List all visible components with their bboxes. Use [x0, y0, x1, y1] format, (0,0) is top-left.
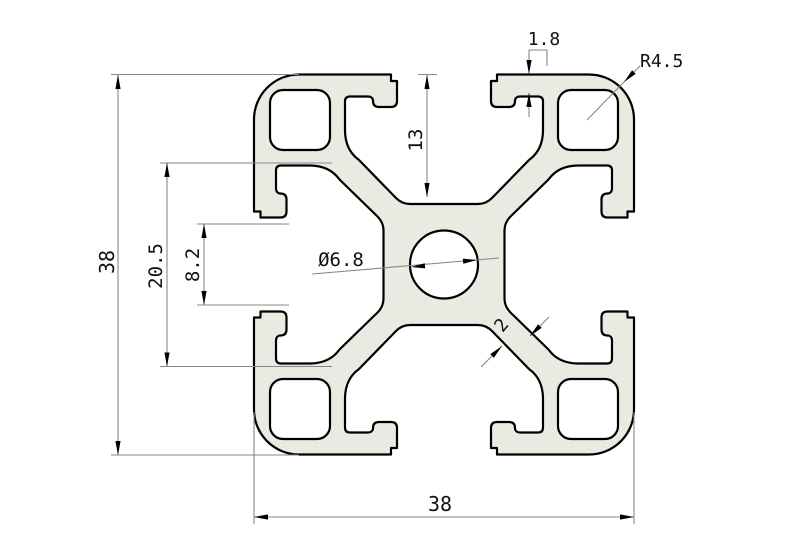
dim-label-overall-height: 38 — [95, 250, 119, 274]
corner-hole-bottom-right — [558, 379, 618, 439]
arrow-down-icon — [424, 183, 429, 197]
dim-slot-opening-width: 8.2 — [182, 224, 289, 305]
dim-slot-depth: 13 — [405, 75, 437, 198]
extrusion-profile-drawing: 1.8 R4.5 13 38 20.5 — [0, 0, 804, 557]
technical-drawing-canvas: 1.8 R4.5 13 38 20.5 — [0, 0, 804, 557]
corner-hole-top-right — [558, 90, 618, 150]
corner-hole-top-left — [270, 90, 330, 150]
arrow-down-icon — [115, 441, 120, 455]
arrow-left-icon — [254, 514, 268, 519]
arrow-up-icon — [115, 75, 120, 89]
arrow-down-icon — [526, 60, 531, 74]
arrow-right-icon — [620, 514, 634, 519]
dim-label-overall-width: 38 — [428, 492, 452, 516]
arrow-down-icon — [164, 353, 169, 367]
arrow-up-icon — [164, 163, 169, 177]
dim-label-slot-opening-width: 8.2 — [182, 248, 204, 282]
dim-slot-shoulder-width: 20.5 — [145, 163, 332, 367]
dim-label-lip-thickness: 1.8 — [528, 29, 561, 50]
dim-label-slot-shoulder-width: 20.5 — [145, 243, 167, 289]
arrow-up-icon — [201, 224, 206, 238]
dim-label-corner-radius: R4.5 — [640, 51, 683, 72]
corner-hole-bottom-left — [270, 379, 330, 439]
dim-label-center-hole-diameter: Ø6.8 — [318, 249, 364, 271]
arrow-down-icon — [201, 291, 206, 305]
arrow-up-icon — [424, 75, 429, 89]
dim-label-slot-depth: 13 — [405, 129, 427, 152]
